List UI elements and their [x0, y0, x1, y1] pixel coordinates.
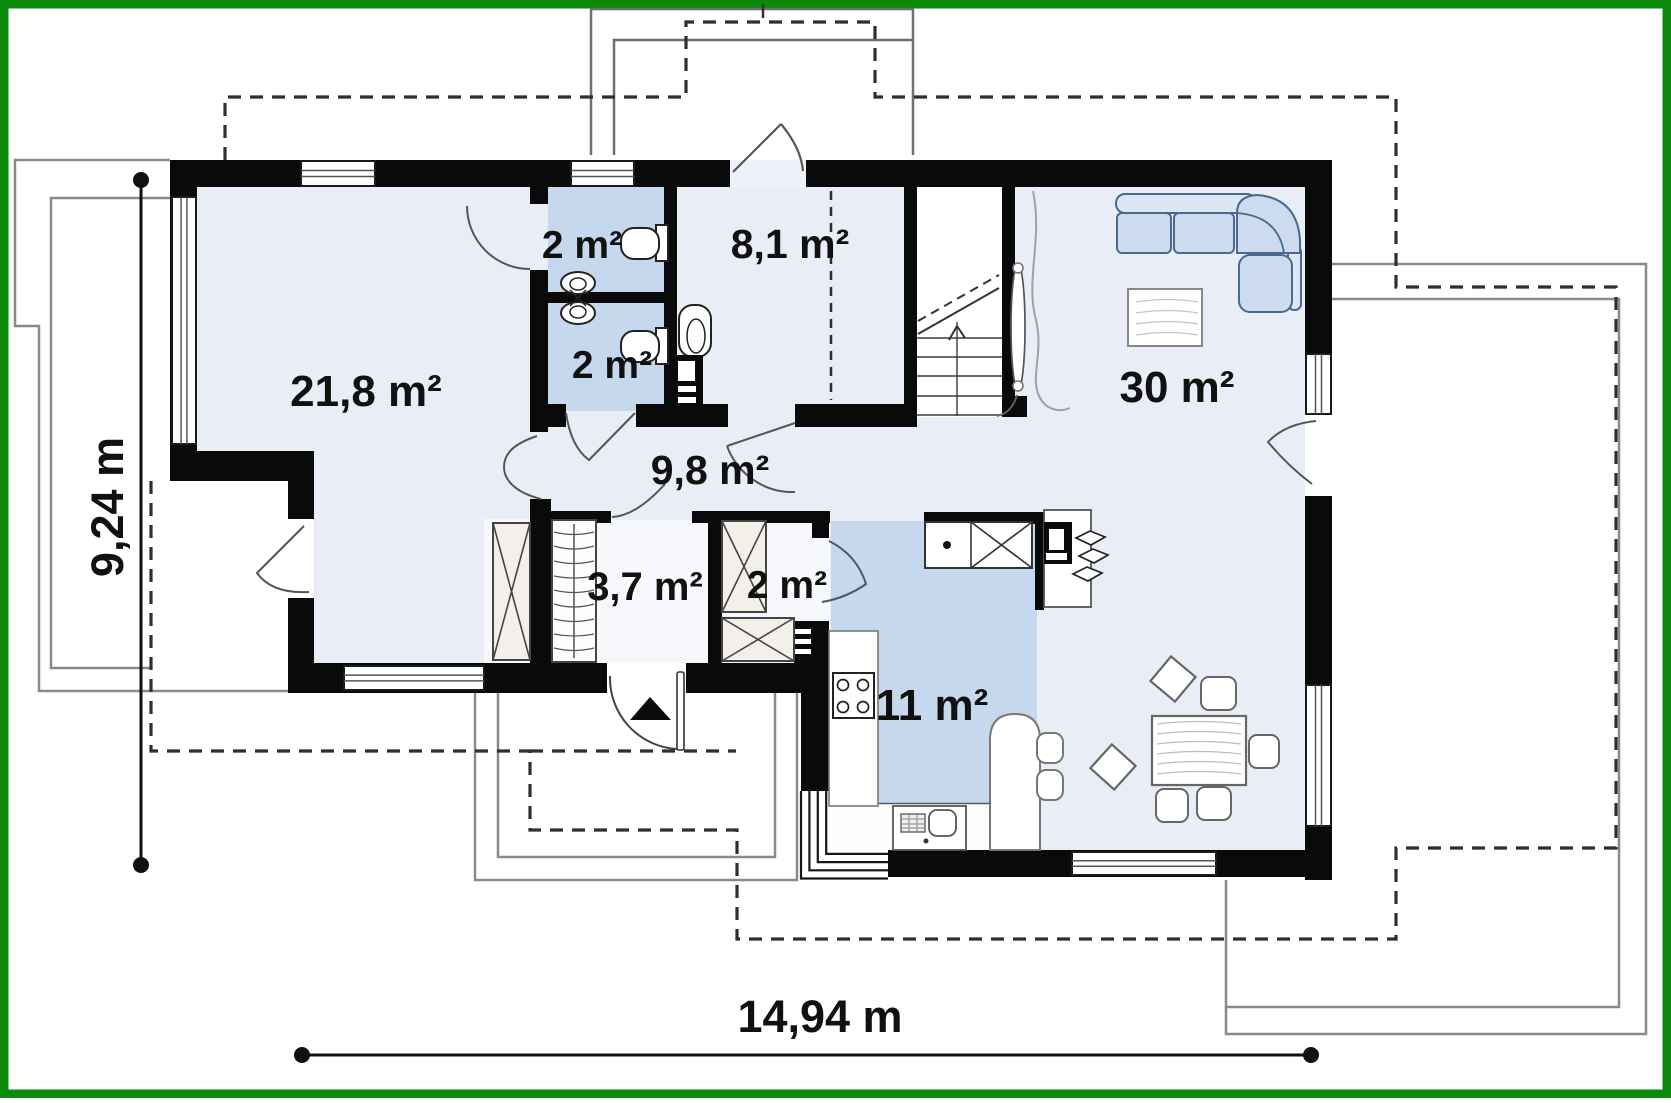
svg-text:3,7 m²: 3,7 m²	[587, 565, 703, 609]
svg-text:9,8 m²: 9,8 m²	[651, 447, 770, 493]
svg-text:8,1 m²: 8,1 m²	[731, 221, 850, 267]
svg-text:11 m²: 11 m²	[876, 681, 989, 730]
svg-text:30 m²: 30 m²	[1120, 363, 1235, 412]
svg-text:14,94 m: 14,94 m	[737, 991, 902, 1042]
svg-text:2 m²: 2 m²	[572, 344, 652, 387]
svg-text:21,8 m²: 21,8 m²	[290, 367, 442, 416]
svg-text:2 m²: 2 m²	[542, 224, 622, 267]
svg-text:2 m²: 2 m²	[747, 564, 827, 607]
svg-text:9,24 m: 9,24 m	[82, 437, 133, 577]
